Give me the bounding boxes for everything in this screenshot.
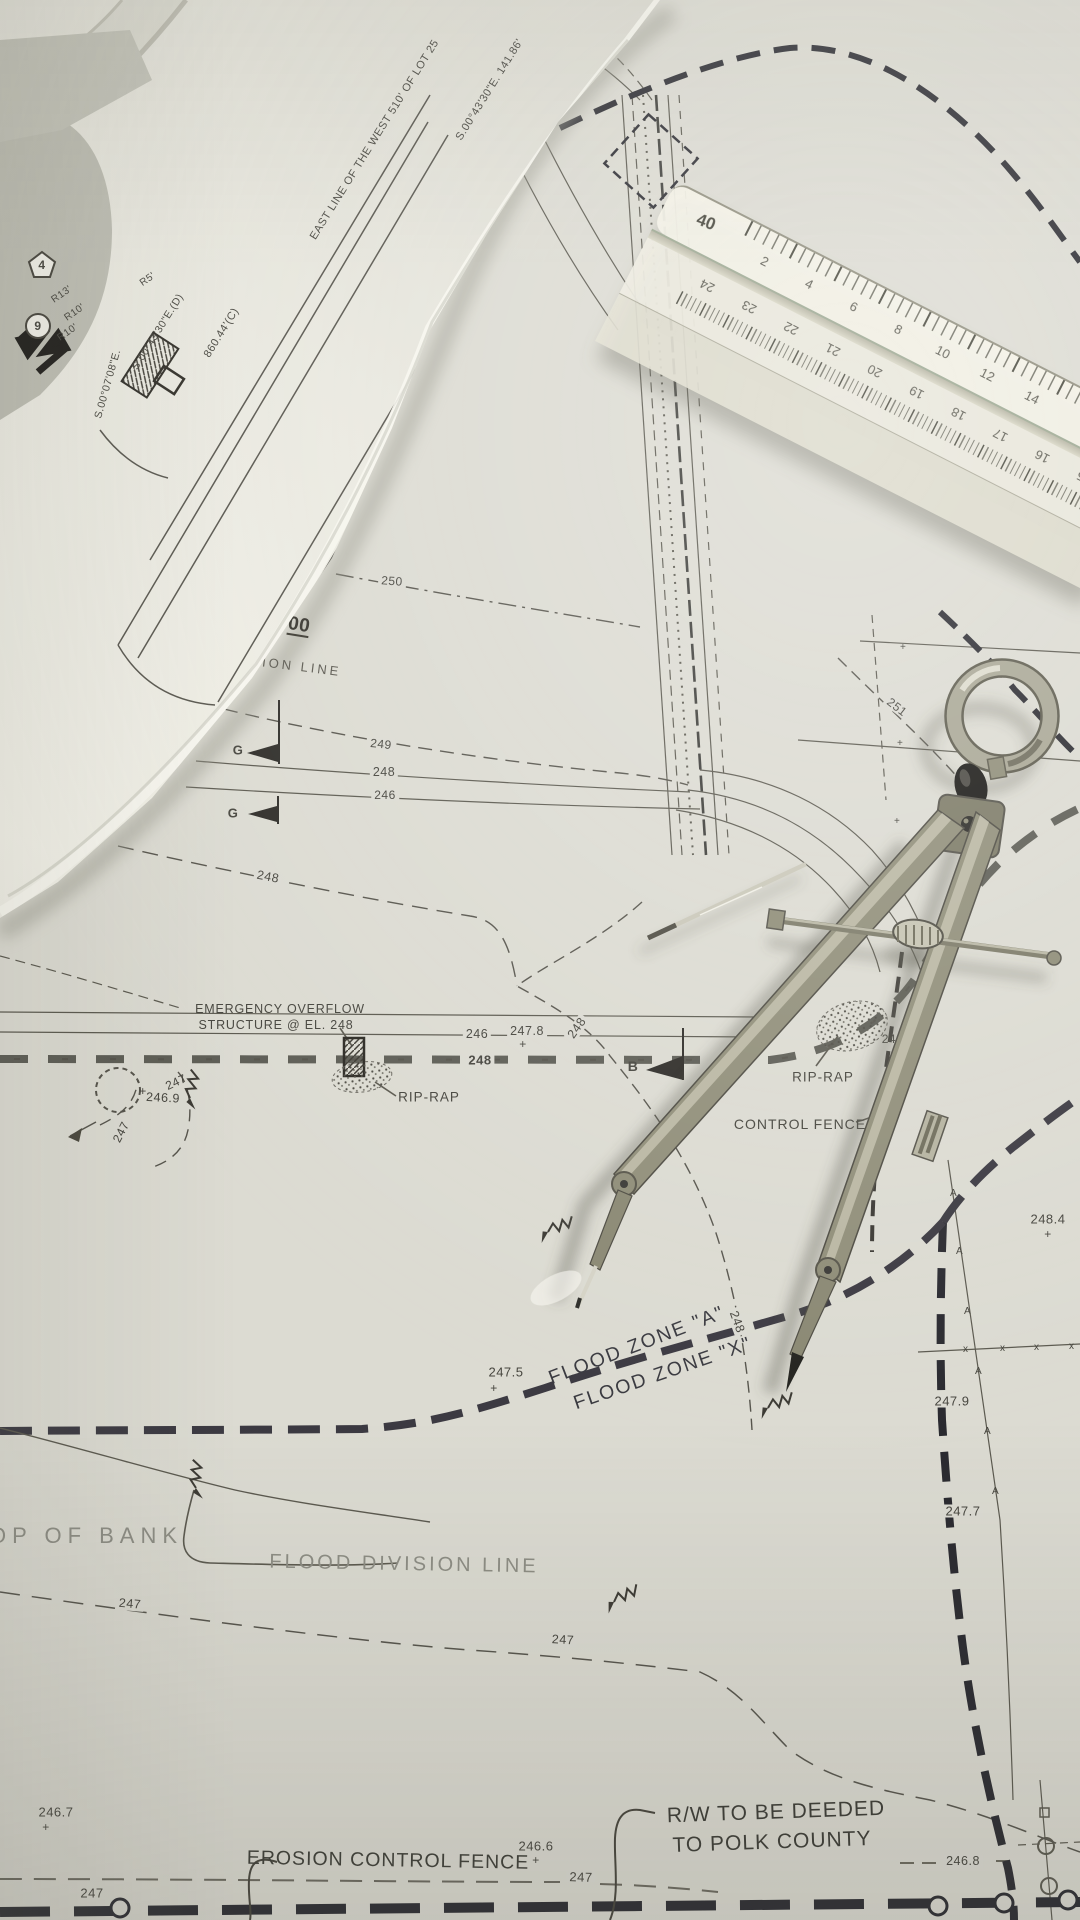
compass-head-ring[interactable] <box>946 660 1059 780</box>
drafting-compass[interactable] <box>0 0 1080 1920</box>
blueprint-photo: x x x x A A A A A A + + + 00 SION LINE 2… <box>0 0 1080 1920</box>
